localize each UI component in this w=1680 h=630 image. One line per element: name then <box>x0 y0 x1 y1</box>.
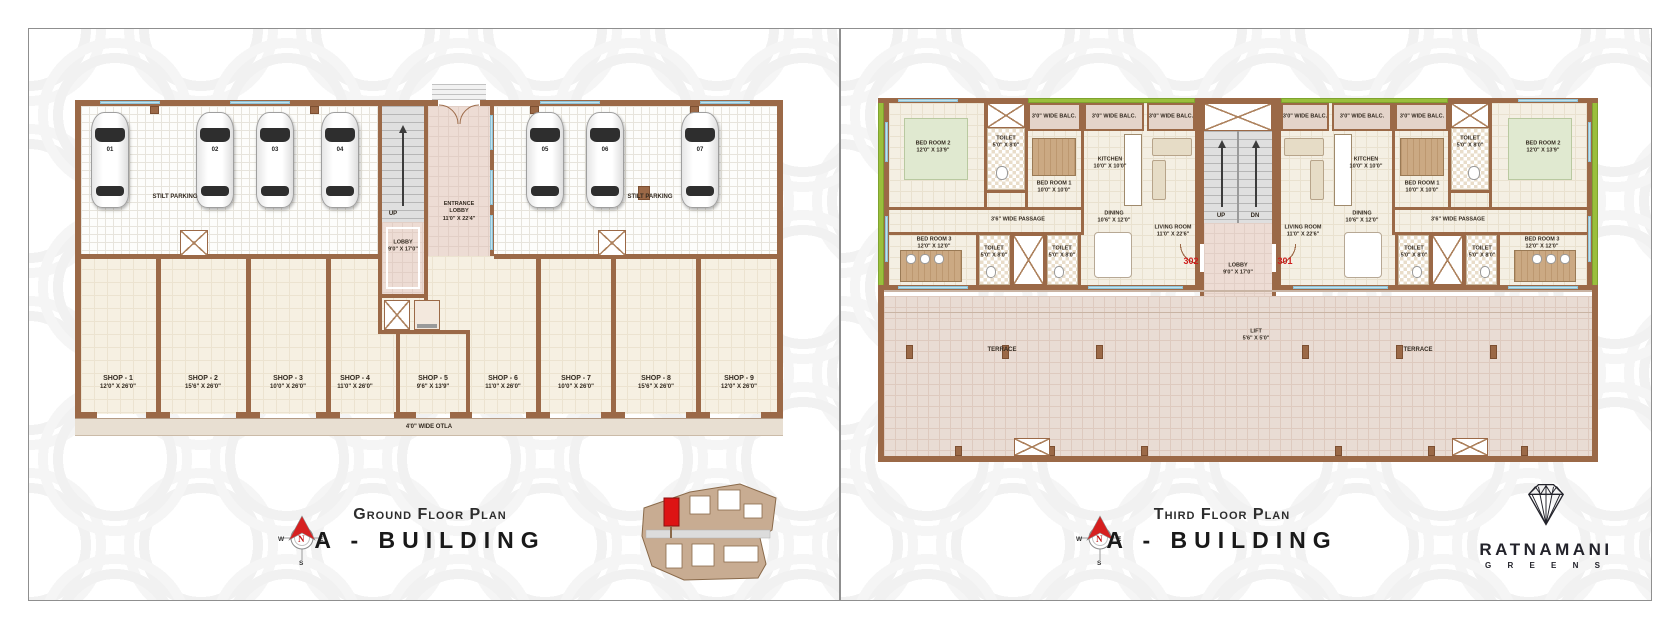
shop-label: SHOP - 611'0" X 26'0" <box>485 374 521 392</box>
car-number: 02 <box>197 147 233 153</box>
wall <box>1392 103 1395 232</box>
terrace-floor <box>884 296 1592 456</box>
car-rear-window <box>96 186 124 196</box>
wall <box>1078 235 1081 285</box>
wall <box>878 290 884 462</box>
wall <box>878 456 1598 462</box>
window-strip <box>1293 286 1388 289</box>
wc-icon <box>986 266 996 278</box>
pillar <box>955 446 962 456</box>
diamond-logo-icon <box>1518 480 1574 528</box>
wall <box>889 207 1084 210</box>
parked-car: 03 <box>256 112 294 208</box>
bed <box>1400 138 1444 176</box>
green-edge <box>1592 98 1598 290</box>
room-label-toilet: TOILET5'0" X 8'0" <box>1401 246 1428 261</box>
wc-icon <box>996 166 1008 180</box>
shaft-x-icon <box>987 103 1025 128</box>
stair-up-arrow-icon <box>402 128 404 206</box>
bed <box>1032 138 1076 176</box>
room-label-toilet: TOILET5'0" X 8'0" <box>993 136 1020 151</box>
passage-label: 3'6" WIDE PASSAGE <box>1431 216 1485 223</box>
window-strip <box>898 99 958 102</box>
room-label-bed3: BED ROOM 312'0" X 12'0" <box>917 237 952 252</box>
car-windshield <box>530 128 560 142</box>
lift-label: LIFT5'6" X 5'0" <box>1243 329 1270 344</box>
wc-icon <box>1480 266 1490 278</box>
unit-number-301: 301 <box>1277 256 1292 266</box>
pillow-icon <box>920 254 930 264</box>
window-strip <box>1508 286 1578 289</box>
pillar <box>1396 345 1403 359</box>
parked-car: 02 <box>196 112 234 208</box>
shop-label: SHOP - 310'0" X 26'0" <box>270 374 306 392</box>
shaft-x-icon <box>1451 103 1489 128</box>
car-number: 07 <box>682 147 718 153</box>
wall <box>1592 290 1598 462</box>
passage-label: 3'6" WIDE PASSAGE <box>991 216 1045 223</box>
room-label-toilet: TOILET5'0" X 8'0" <box>1457 136 1484 151</box>
car-windshield <box>95 128 125 142</box>
room-label-bed1: BED ROOM 110'0" X 10'0" <box>1037 181 1072 196</box>
pillow-icon <box>1532 254 1542 264</box>
room-label-dining: DINING10'6" X 12'0" <box>1098 211 1131 226</box>
terrace-step-line <box>884 312 1592 313</box>
terrace-label: TERRACE <box>1403 346 1432 354</box>
car-number: 06 <box>587 147 623 153</box>
shop-label: SHOP - 710'0" X 26'0" <box>558 374 594 392</box>
room-label-bed2: BED ROOM 212'0" X 13'9" <box>1526 141 1561 156</box>
svg-text:S: S <box>1097 560 1102 566</box>
brand-subtitle: G R E E N S <box>1446 561 1646 570</box>
room-label-toilet: TOILET5'0" X 8'0" <box>1469 246 1496 261</box>
shaft-x-icon <box>1204 103 1272 131</box>
balcony-label: 3'0" WIDE BALC. <box>1149 113 1193 120</box>
stilt-parking-label: STILT PARKING <box>152 193 197 201</box>
pillar <box>1335 446 1342 456</box>
stair-up-label: UP <box>389 210 397 218</box>
window-strip <box>1518 99 1578 102</box>
wall <box>987 190 1025 193</box>
room-label-kitchen: KITCHEN10'0" X 10'0" <box>1094 157 1127 172</box>
shop-label: SHOP - 215'6" X 26'0" <box>185 374 221 392</box>
car-number: 01 <box>92 147 128 153</box>
car-windshield <box>260 128 290 142</box>
third-plan-title: Third Floor Plan <box>1072 506 1372 524</box>
parked-car: 04 <box>321 112 359 208</box>
room-label-dining: DINING10'6" X 12'0" <box>1346 211 1379 226</box>
stair-up-arrow-icon <box>1221 143 1223 207</box>
car-rear-window <box>326 186 354 196</box>
balcony-label: 3'0" WIDE BALC. <box>1032 113 1076 120</box>
shop-label: SHOP - 411'0" X 26'0" <box>337 374 373 392</box>
room-label-toilet: TOILET5'0" X 8'0" <box>981 246 1008 261</box>
car-number: 03 <box>257 147 293 153</box>
wall <box>1497 235 1500 285</box>
pillar <box>1521 446 1528 456</box>
window-strip <box>898 286 968 289</box>
wall <box>1451 190 1489 193</box>
stilt-parking-label: STILT PARKING <box>627 193 672 201</box>
car-windshield <box>590 128 620 142</box>
car-windshield <box>685 128 715 142</box>
car-rear-window <box>591 186 619 196</box>
shop-label: SHOP - 815'6" X 26'0" <box>638 374 674 392</box>
parapet-line <box>884 290 1592 292</box>
parked-car: 07 <box>681 112 719 208</box>
stair-divider <box>1237 131 1239 223</box>
lobby-label: LOBBY9'0" X 17'0" <box>388 240 418 255</box>
room-label-living: LIVING ROOM11'0" X 22'6" <box>1285 225 1322 240</box>
third-plan-building: A - BUILDING <box>1072 527 1372 554</box>
pillar <box>1428 446 1435 456</box>
lift-shaft-x-icon <box>1013 235 1044 285</box>
car-number: 05 <box>527 147 563 153</box>
room-label-living: LIVING ROOM11'0" X 22'6" <box>1155 225 1192 240</box>
balcony-label: 3'0" WIDE BALC. <box>1340 113 1384 120</box>
pillar <box>1302 345 1309 359</box>
car-windshield <box>200 128 230 142</box>
dining-table <box>1344 232 1382 278</box>
pillow-icon <box>1560 254 1570 264</box>
stair-dn-arrow-icon <box>1255 143 1257 207</box>
pillow-icon <box>1546 254 1556 264</box>
wc-icon <box>1468 166 1480 180</box>
parked-car: 06 <box>586 112 624 208</box>
parked-car: 05 <box>526 112 564 208</box>
dining-table <box>1094 232 1132 278</box>
unit-302: 3'0" WIDE BALC. 3'0" WIDE BALC. 3'0" WID… <box>878 98 1200 290</box>
kitchen-counter <box>1124 134 1142 206</box>
car-rear-window <box>201 186 229 196</box>
sofa <box>1284 138 1324 156</box>
lift-shaft-x-icon <box>1432 235 1463 285</box>
shaft-x-icon <box>1452 438 1488 456</box>
pillow-icon <box>906 254 916 264</box>
wall <box>1025 103 1028 210</box>
sofa <box>1152 160 1166 200</box>
pillar <box>906 345 913 359</box>
sofa <box>1310 160 1324 200</box>
lobby-label: LOBBY9'0" X 17'0" <box>1223 263 1253 278</box>
car-rear-window <box>531 186 559 196</box>
pillar <box>1096 345 1103 359</box>
car-rear-window <box>261 186 289 196</box>
otla-label: 4'0" WIDE OTLA <box>406 423 452 431</box>
balcony-label: 3'0" WIDE BALC. <box>1283 113 1327 120</box>
window-strip <box>1588 216 1591 262</box>
brochure-canvas: 01 02 03 04 05 06 07 STILT PARKING STILT… <box>0 0 1680 630</box>
window-strip <box>1088 286 1183 289</box>
room-label-bed1: BED ROOM 110'0" X 10'0" <box>1405 181 1440 196</box>
wc-icon <box>1054 266 1064 278</box>
shaft-x-icon <box>1014 438 1050 456</box>
window-strip <box>885 216 888 262</box>
third-floor-plan: 3'0" WIDE BALC. 3'0" WIDE BALC. 3'0" WID… <box>0 0 1680 630</box>
window-strip <box>1588 122 1591 162</box>
wall <box>1392 207 1587 210</box>
pillow-icon <box>934 254 944 264</box>
brand-name: RATNAMANI <box>1446 540 1646 560</box>
room-label-toilet: TOILET5'0" X 8'0" <box>1049 246 1076 261</box>
shop-label: SHOP - 112'0" X 26'0" <box>100 374 136 392</box>
car-windshield <box>325 128 355 142</box>
parked-car: 01 <box>91 112 129 208</box>
shop-label: SHOP - 59'6" X 13'9" <box>417 374 450 392</box>
sofa <box>1152 138 1192 156</box>
wall <box>1081 103 1084 232</box>
stair-dn-label: DN <box>1251 212 1260 220</box>
entrance-lobby-label: ENTRANCE LOBBY11'0" X 22'4" <box>436 201 482 223</box>
door-gap <box>1200 244 1204 272</box>
window-strip <box>885 122 888 162</box>
room-label-bed2: BED ROOM 212'0" X 13'9" <box>916 141 951 156</box>
balcony-label: 3'0" WIDE BALC. <box>1092 113 1136 120</box>
wall <box>1489 103 1492 210</box>
wc-icon <box>1412 266 1422 278</box>
shop-label: SHOP - 912'0" X 26'0" <box>721 374 757 392</box>
pillar <box>1490 345 1497 359</box>
pillar <box>1141 446 1148 456</box>
car-rear-window <box>686 186 714 196</box>
stair-up-label: UP <box>1217 212 1225 220</box>
room-label-kitchen: KITCHEN10'0" X 10'0" <box>1350 157 1383 172</box>
car-number: 04 <box>322 147 358 153</box>
unit-number-302: 302 <box>1183 256 1198 266</box>
terrace-label: TERRACE <box>987 346 1016 354</box>
balcony-label: 3'0" WIDE BALC. <box>1400 113 1444 120</box>
room-label-bed3: BED ROOM 312'0" X 12'0" <box>1525 237 1560 252</box>
unit-301: 3'0" WIDE BALC. 3'0" WIDE BALC. 3'0" WID… <box>1276 98 1598 290</box>
